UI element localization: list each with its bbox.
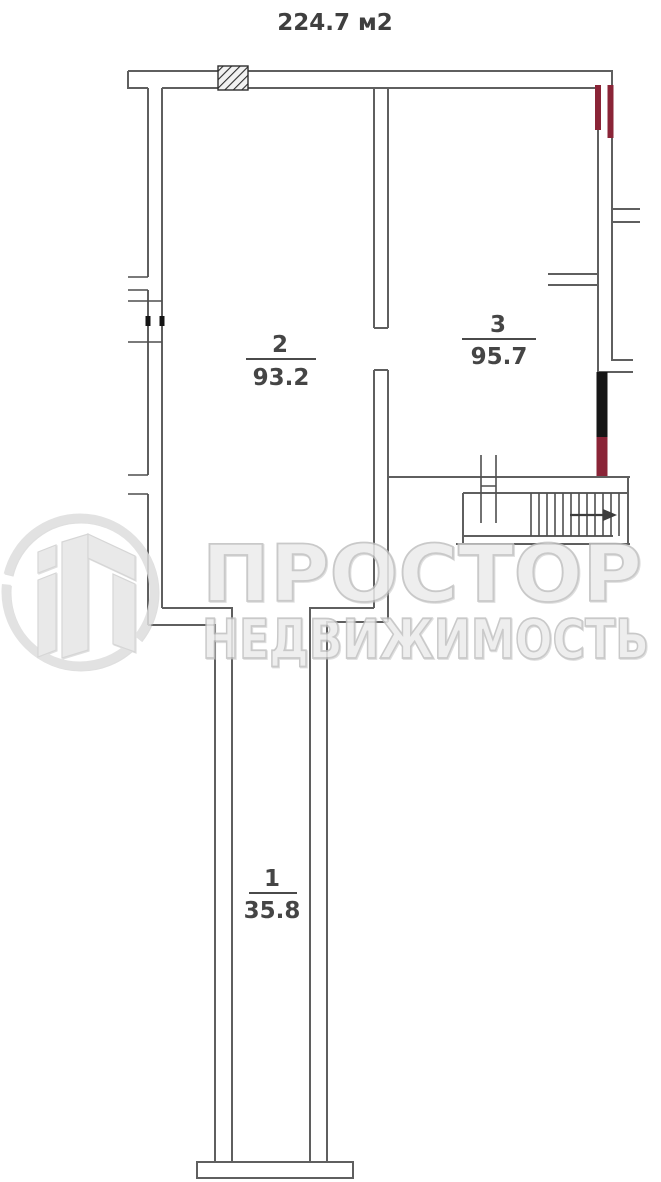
entrance-porch <box>197 1162 353 1178</box>
watermark: ПРОСТОР НЕДВИЖИМОСТЬ <box>6 518 649 671</box>
room-1-area: 35.8 <box>244 898 301 924</box>
hatched-column <box>218 66 248 90</box>
room-3-area: 95.7 <box>471 344 528 370</box>
black-wall-segment <box>597 372 608 437</box>
red-marker-top-left <box>595 85 601 130</box>
room-1-number: 1 <box>264 866 280 892</box>
room-2-area: 93.2 <box>253 365 310 391</box>
room-3-label: 3 95.7 <box>462 312 536 370</box>
total-area-label: 224.7 м2 <box>277 10 393 36</box>
room-2-number: 2 <box>272 332 288 358</box>
red-wall-segment <box>597 437 608 478</box>
door-opening-marker <box>481 455 496 523</box>
left-wall-windows <box>128 277 162 494</box>
watermark-brand-text: ПРОСТОР <box>202 530 642 620</box>
watermark-brand-subtext: НЕДВИЖИМОСТЬ <box>202 608 649 671</box>
right-wall-details <box>548 209 640 372</box>
window-tick-marks <box>148 316 162 326</box>
floor-plan-image: 224.7 м2 <box>0 0 661 1182</box>
red-marker-top-right <box>608 85 614 138</box>
room-1-label: 1 35.8 <box>244 866 301 924</box>
room-2-label: 2 93.2 <box>246 332 316 391</box>
watermark-logo <box>6 518 154 666</box>
stair-arrow-icon <box>570 509 617 521</box>
floor-plan-svg: 224.7 м2 <box>0 0 661 1182</box>
room-3-number: 3 <box>490 312 506 338</box>
